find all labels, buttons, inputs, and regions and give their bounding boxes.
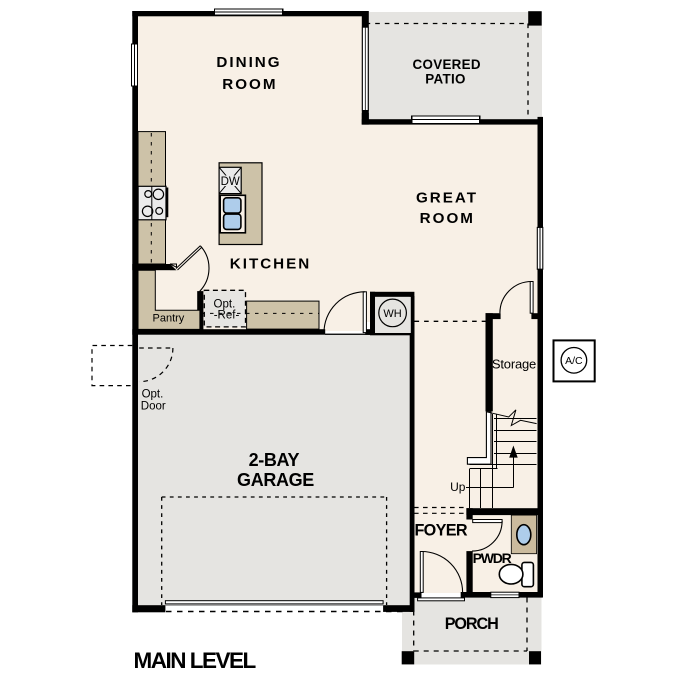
svg-text:Door: Door — [141, 401, 166, 413]
svg-text:DW: DW — [221, 176, 240, 188]
svg-text:A/C: A/C — [565, 355, 583, 367]
svg-text:GARAGE: GARAGE — [237, 470, 314, 490]
svg-text:MAIN LEVEL: MAIN LEVEL — [134, 648, 257, 673]
svg-text:COVERED: COVERED — [413, 57, 481, 72]
svg-text:Storage: Storage — [492, 356, 536, 371]
svg-text:PWDR: PWDR — [473, 550, 512, 566]
svg-text:Up: Up — [450, 480, 466, 494]
svg-text:-Ref-: -Ref- — [214, 310, 240, 322]
svg-text:Pantry: Pantry — [153, 313, 185, 325]
svg-text:Opt.: Opt. — [142, 389, 164, 401]
svg-text:PORCH: PORCH — [445, 615, 498, 633]
svg-text:ROOM: ROOM — [222, 76, 277, 93]
svg-text:WH: WH — [383, 308, 401, 320]
svg-text:ROOM: ROOM — [420, 210, 475, 227]
svg-text:DINING: DINING — [216, 54, 281, 71]
svg-text:FOYER: FOYER — [414, 522, 467, 540]
svg-text:KITCHEN: KITCHEN — [230, 256, 312, 273]
svg-text:PATIO: PATIO — [425, 72, 465, 87]
svg-text:2-BAY: 2-BAY — [249, 450, 300, 470]
svg-text:GREAT: GREAT — [416, 190, 478, 207]
